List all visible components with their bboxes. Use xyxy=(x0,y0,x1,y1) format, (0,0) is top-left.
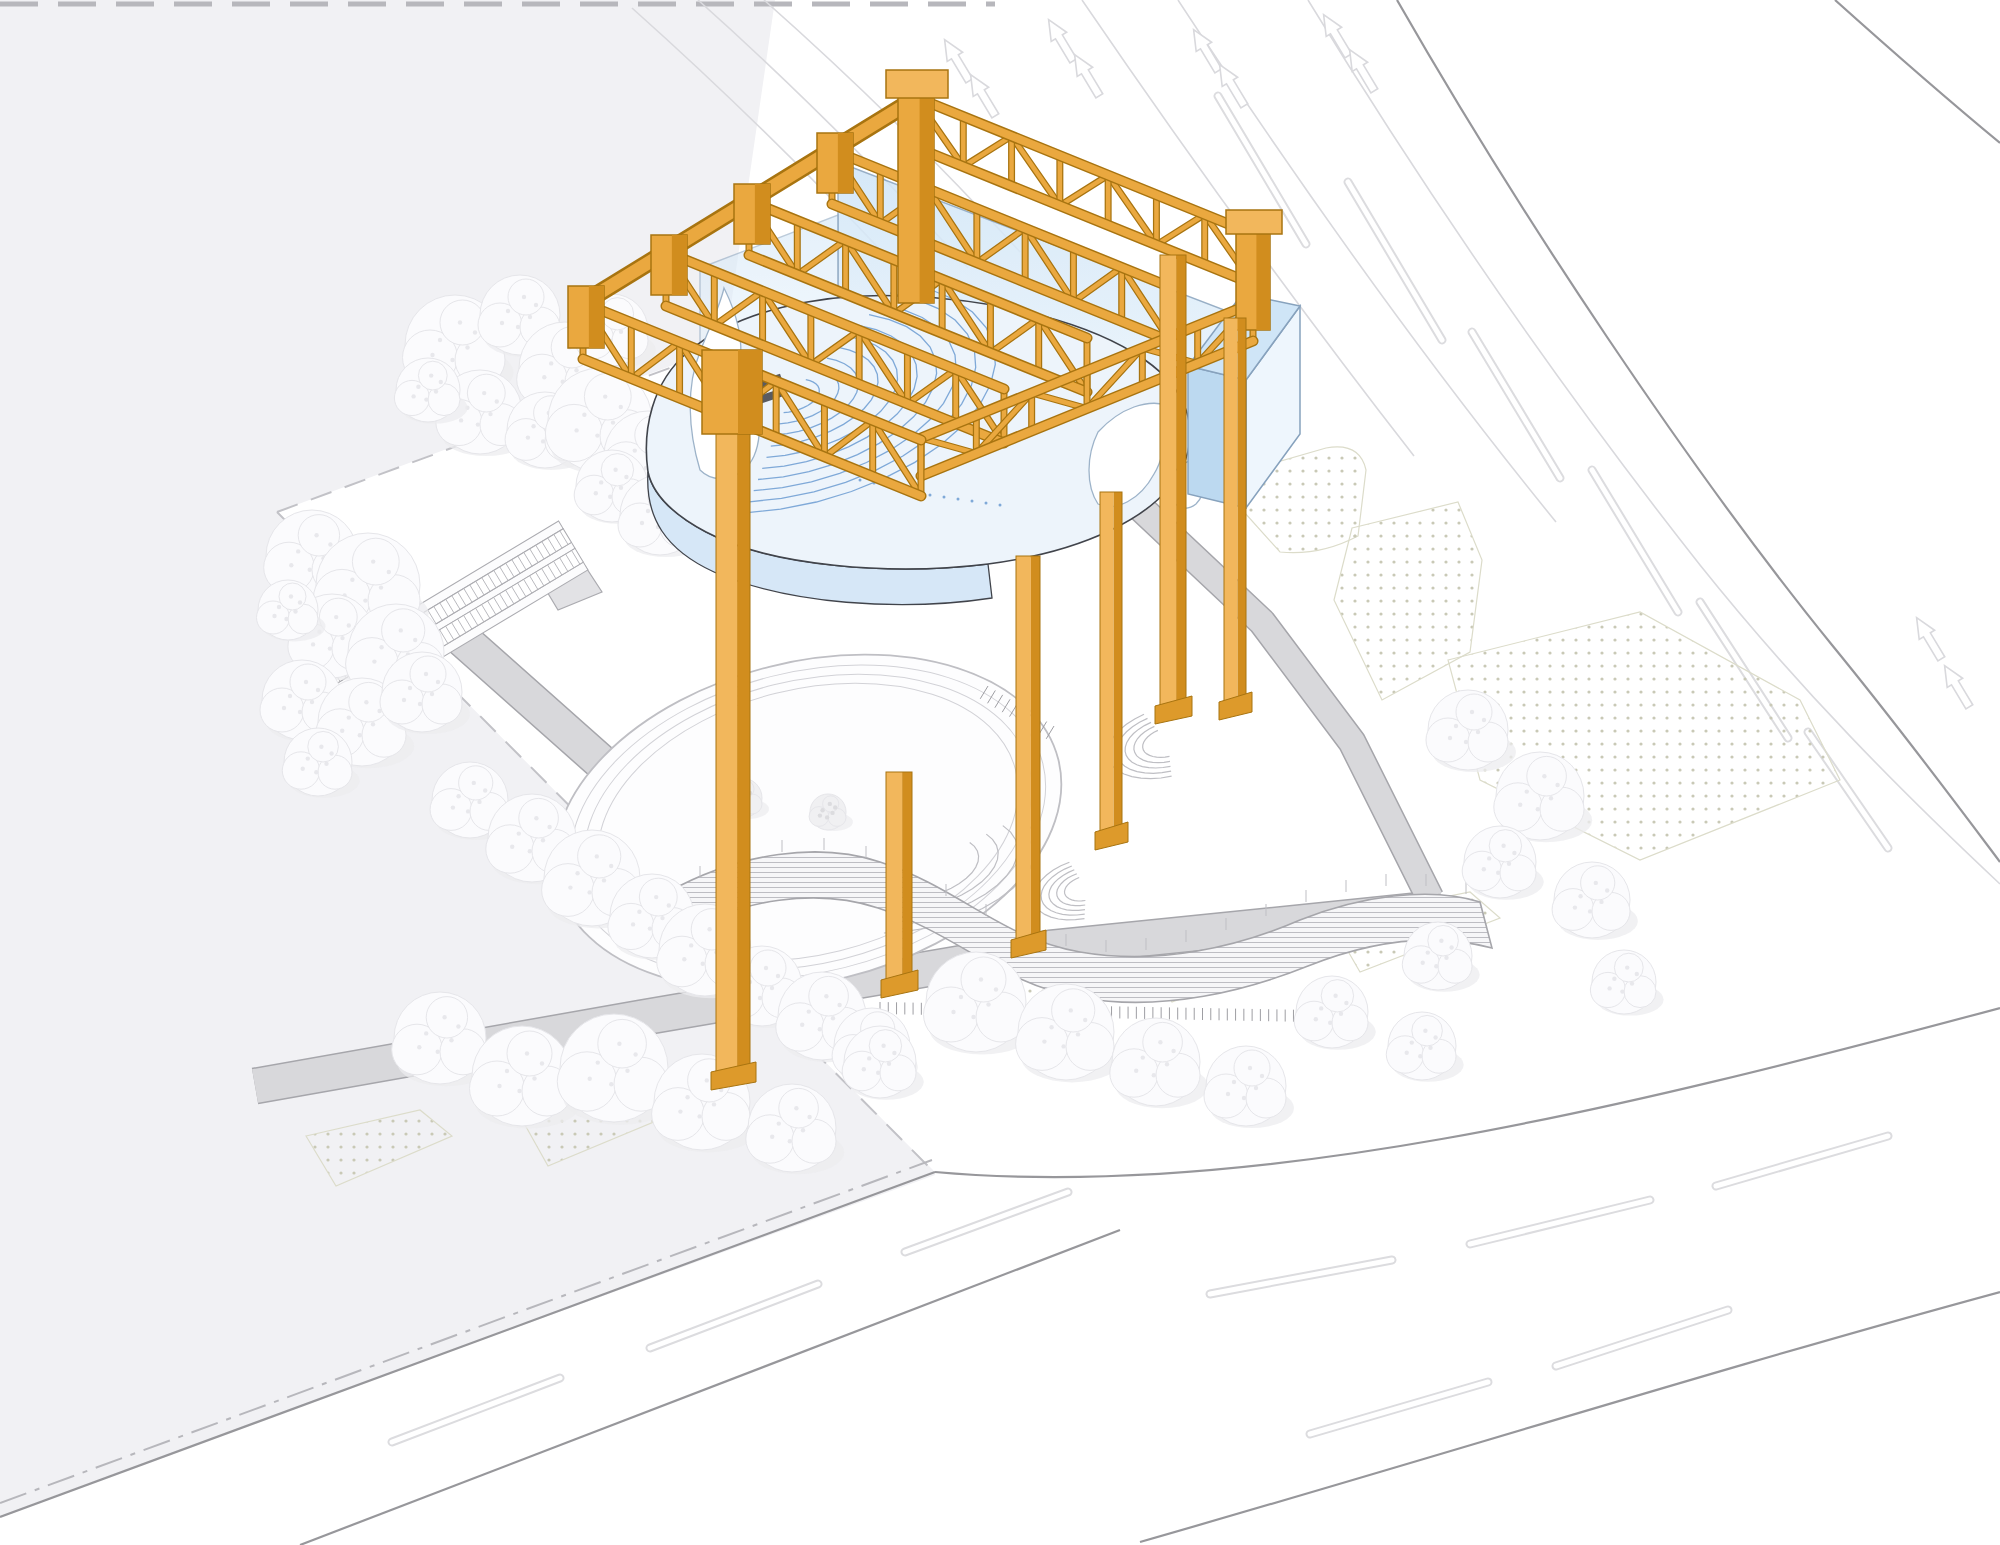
site-diagram-canvas xyxy=(0,0,2000,1545)
corner-post-cap xyxy=(886,70,948,98)
gantry-leg xyxy=(881,772,918,998)
axonometric-site-diagram xyxy=(0,0,2000,1545)
gantry-leg xyxy=(1155,255,1192,724)
corner-post-cap xyxy=(1226,210,1282,234)
